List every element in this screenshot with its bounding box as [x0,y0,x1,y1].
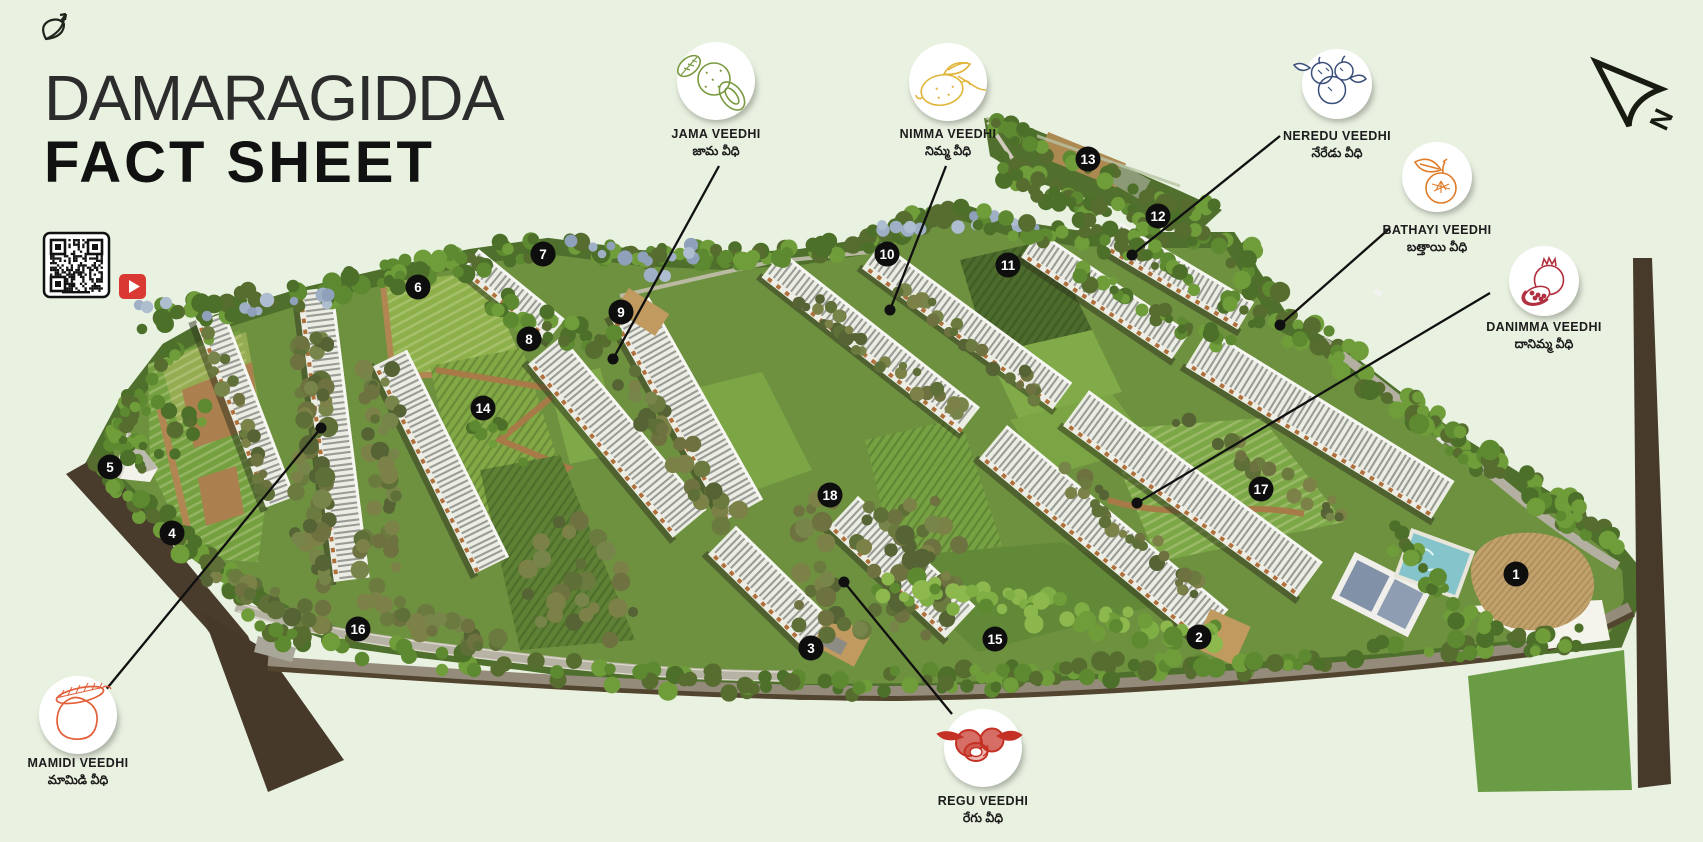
svg-text:NIMMA VEEDHI: NIMMA VEEDHI [900,127,997,141]
svg-text:11: 11 [1001,258,1016,273]
svg-text:15: 15 [987,632,1003,647]
svg-text:1: 1 [1512,567,1520,582]
svg-text:3: 3 [807,641,815,656]
svg-text:13: 13 [1080,152,1096,167]
svg-text:NEREDU VEEDHI: NEREDU VEEDHI [1283,129,1391,143]
svg-text:FACT SHEET: FACT SHEET [44,130,435,195]
svg-text:14: 14 [475,401,491,416]
svg-text:DANIMMA VEEDHI: DANIMMA VEEDHI [1486,320,1602,334]
svg-text:6: 6 [414,280,422,295]
svg-text:2: 2 [1195,630,1203,645]
svg-text:రేగు వీధి: రేగు వీధి [963,811,1003,825]
svg-text:17: 17 [1253,482,1268,497]
svg-text:BATHAYI VEEDHI: BATHAYI VEEDHI [1382,223,1491,237]
svg-text:8: 8 [525,332,533,347]
svg-text:మామిడి వీధి: మామిడి వీధి [48,773,109,787]
svg-text:DAMARAGIDDA: DAMARAGIDDA [44,62,505,134]
svg-text:JAMA VEEDHI: JAMA VEEDHI [671,127,760,141]
svg-text:బత్తాయి వీధి: బత్తాయి వీధి [1407,240,1467,256]
svg-text:MAMIDI VEEDHI: MAMIDI VEEDHI [27,756,128,770]
svg-text:18: 18 [822,488,838,503]
svg-text:5: 5 [106,460,114,475]
svg-text:10: 10 [879,247,894,262]
svg-text:12: 12 [1150,209,1165,224]
svg-text:9: 9 [617,305,625,320]
svg-text:4: 4 [168,526,176,541]
svg-text:REGU VEEDHI: REGU VEEDHI [938,794,1029,808]
svg-text:జామ వీధి: జామ వీధి [692,144,739,158]
svg-text:నేరేడు వీధి: నేరేడు వీధి [1312,146,1363,160]
svg-text:7: 7 [539,247,547,262]
svg-text:16: 16 [350,622,366,637]
